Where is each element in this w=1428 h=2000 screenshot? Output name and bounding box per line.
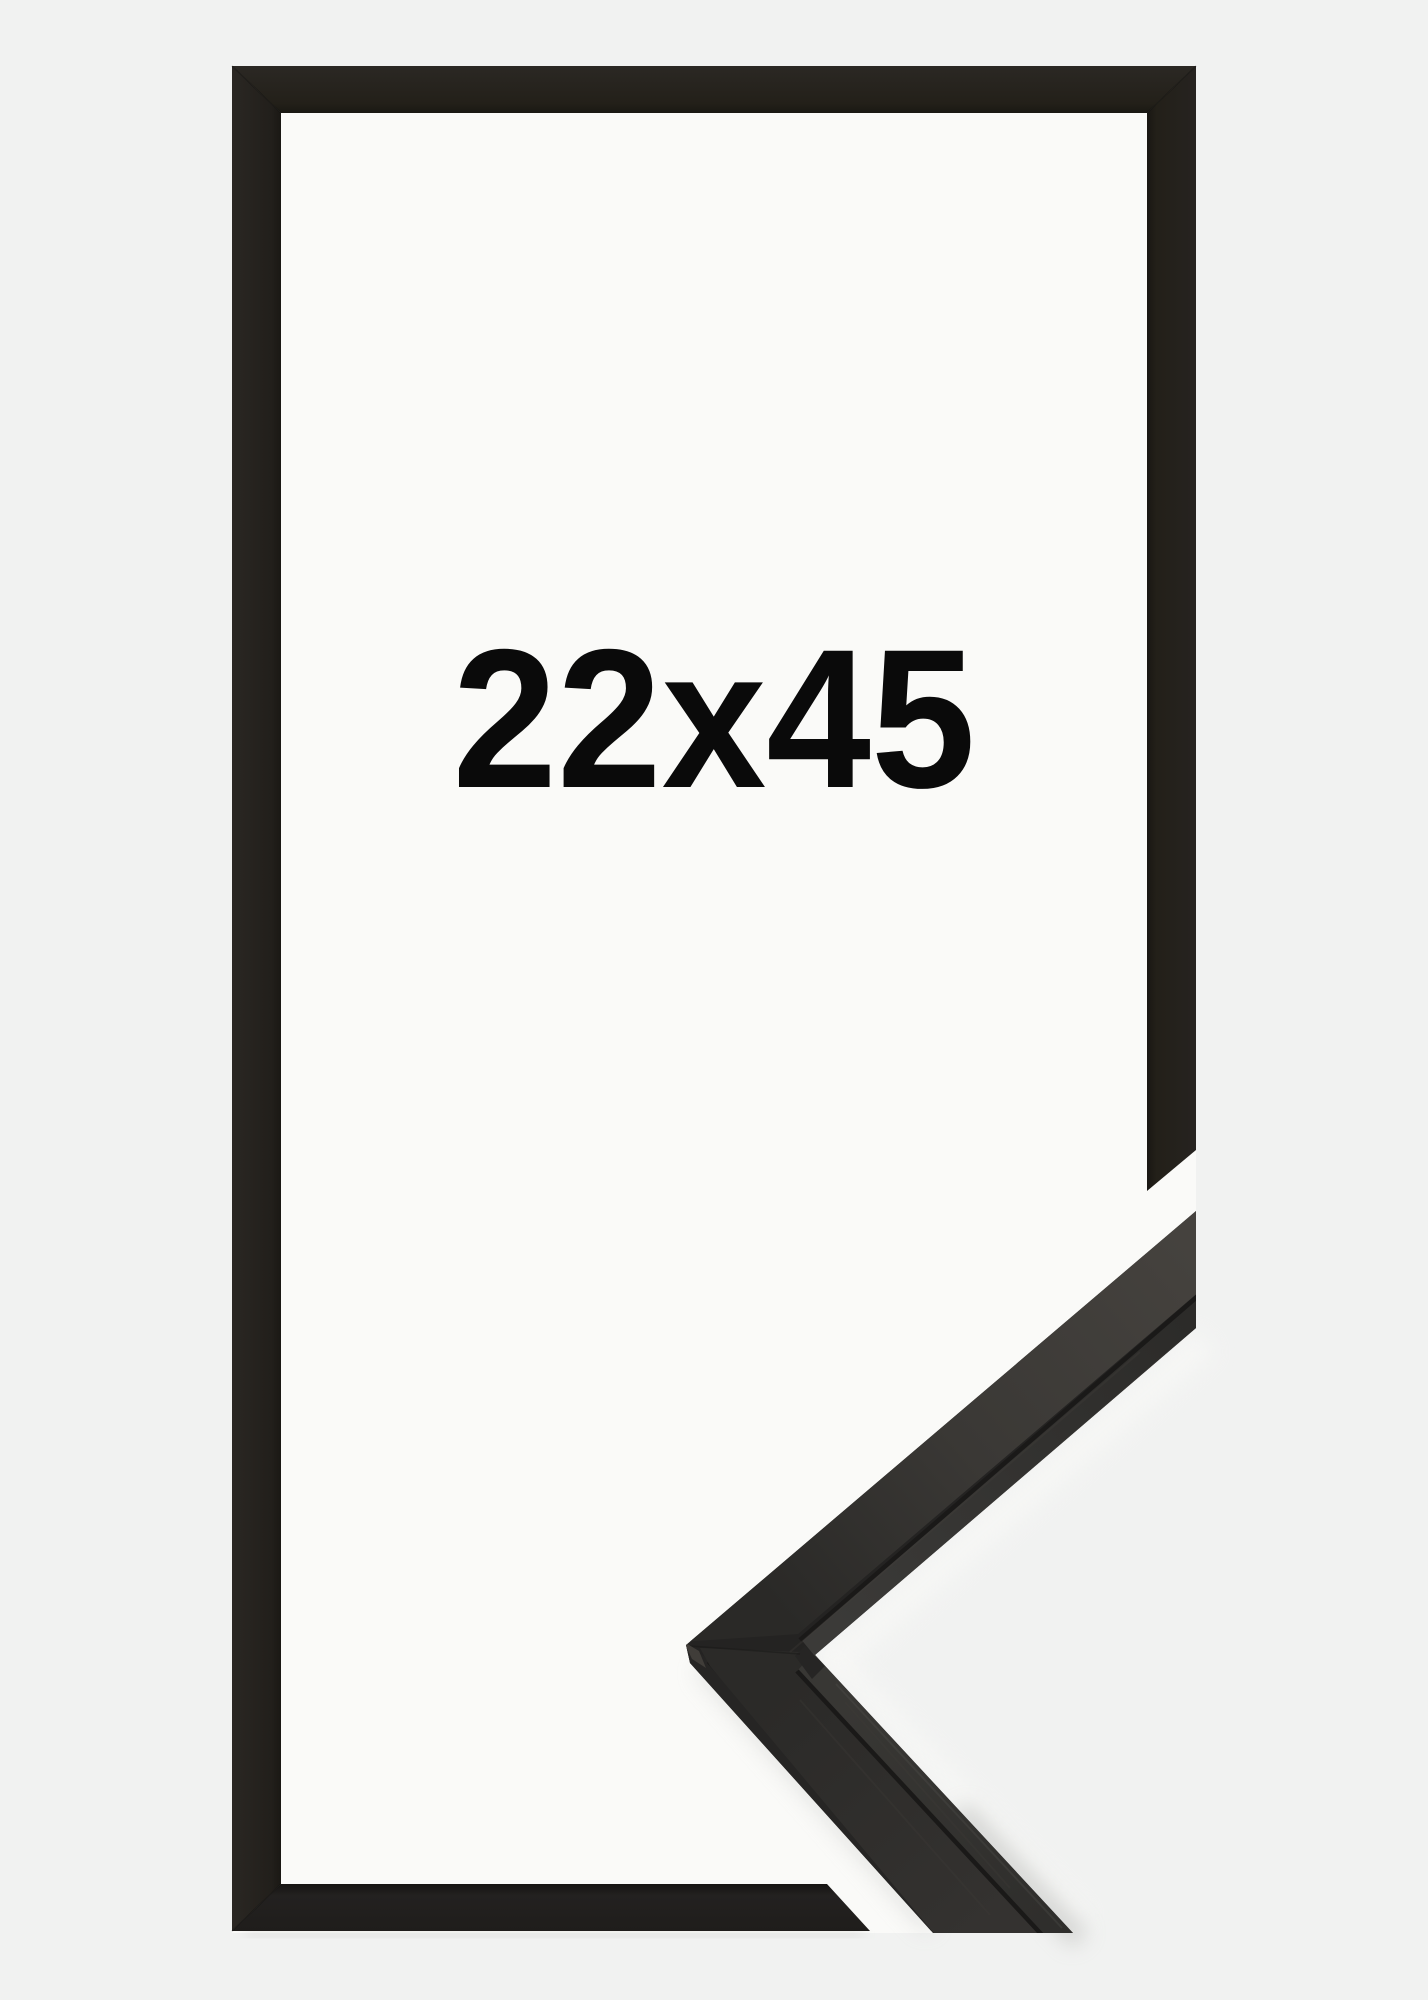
svg-text:22x45: 22x45 xyxy=(452,608,975,829)
